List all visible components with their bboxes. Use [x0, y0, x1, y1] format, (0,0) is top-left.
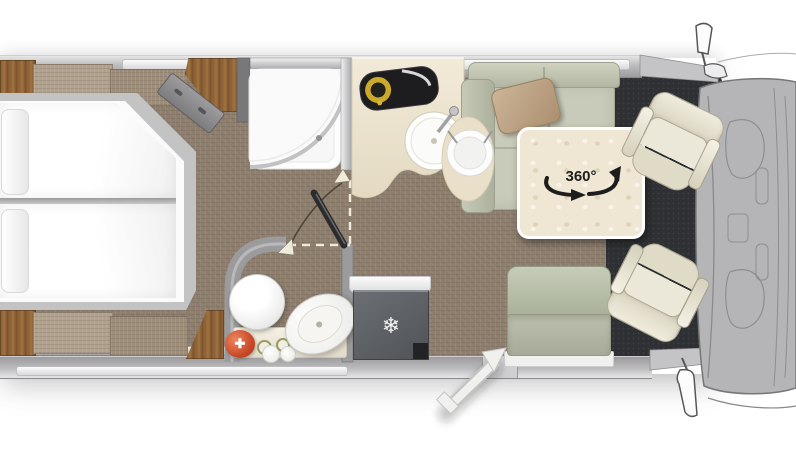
- entry-door: [410, 336, 540, 441]
- shower-door-handle: [316, 135, 322, 141]
- mirror-top-base: [704, 64, 727, 78]
- side-counter-plate: [438, 115, 508, 205]
- bathroom-door: [270, 165, 365, 260]
- bedroom-shelf-bottom: [0, 310, 36, 356]
- shower-cabin: [235, 54, 355, 176]
- cab-body: [578, 18, 796, 430]
- bed-pillow-bottom: [1, 209, 29, 293]
- shower-frame-left: [237, 58, 250, 122]
- double-bed: [0, 93, 196, 310]
- toilet: [229, 274, 285, 330]
- bedroom-cushion-bottom-2: [110, 316, 188, 356]
- kitchen-sink-drain: [431, 138, 437, 144]
- cab-wall-taper-bottom: [650, 348, 706, 370]
- window-bottom: [16, 366, 348, 376]
- bed-pillow-top: [1, 109, 29, 195]
- cab-roof-line: [718, 53, 796, 62]
- wardrobe-handle2-icon: [197, 106, 207, 115]
- mirror-top-icon: [696, 23, 712, 54]
- towel-roll-red: ✚: [225, 330, 255, 358]
- door-swing-arrowhead-up: [334, 169, 350, 183]
- bumper-line: [708, 398, 796, 408]
- wardrobe-handle-icon: [174, 88, 184, 97]
- mirror-bottom-icon: [677, 370, 697, 417]
- bedroom-cushion-bottom-1: [33, 312, 113, 354]
- floorplan-canvas: ✚ ❄: [0, 0, 796, 466]
- plate-inner: [454, 137, 486, 169]
- door-panel: [314, 193, 344, 245]
- first-aid-cross-icon: ✚: [225, 330, 255, 358]
- door-panel-highlight: [316, 194, 345, 244]
- door-swing-arrowhead-left: [278, 239, 294, 255]
